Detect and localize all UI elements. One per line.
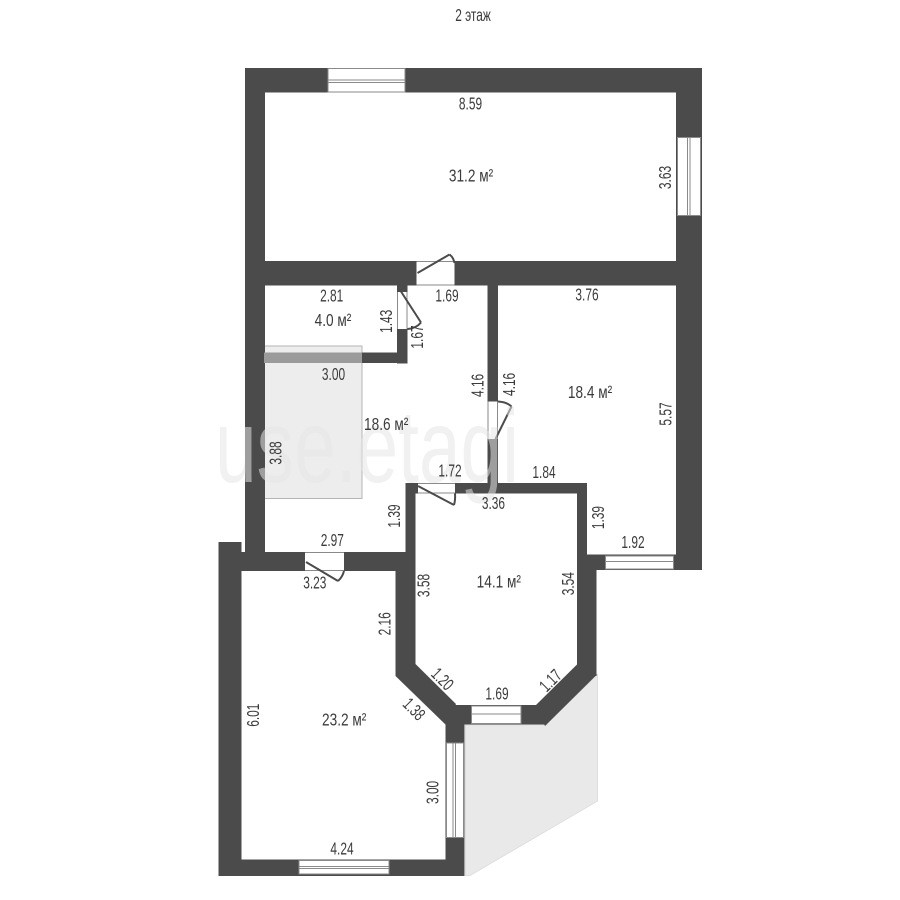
svg-text:3.23: 3.23 bbox=[303, 573, 326, 593]
svg-text:3.76: 3.76 bbox=[575, 285, 598, 305]
svg-text:2.16: 2.16 bbox=[375, 612, 395, 635]
svg-text:4.24: 4.24 bbox=[330, 839, 353, 859]
svg-text:31.2 м²: 31.2 м² bbox=[449, 167, 493, 186]
svg-text:14.1 м²: 14.1 м² bbox=[477, 573, 521, 592]
svg-text:3.54: 3.54 bbox=[559, 572, 579, 595]
svg-text:2.81: 2.81 bbox=[320, 286, 343, 306]
svg-text:use.etagi: use.etagi bbox=[215, 389, 519, 505]
svg-text:1.69: 1.69 bbox=[485, 684, 508, 704]
svg-text:1.43: 1.43 bbox=[377, 310, 397, 333]
svg-text:4.0 м²: 4.0 м² bbox=[315, 311, 352, 330]
svg-text:8.59: 8.59 bbox=[459, 94, 482, 114]
svg-text:18.4 м²: 18.4 м² bbox=[568, 384, 612, 403]
svg-text:1.67: 1.67 bbox=[408, 325, 428, 348]
svg-text:23.2 м²: 23.2 м² bbox=[322, 711, 366, 730]
svg-text:1.84: 1.84 bbox=[532, 463, 555, 483]
svg-text:4.16: 4.16 bbox=[468, 374, 488, 397]
svg-text:2.97: 2.97 bbox=[321, 531, 344, 551]
svg-text:4.16: 4.16 bbox=[500, 373, 520, 396]
svg-text:1.39: 1.39 bbox=[589, 506, 609, 529]
svg-text:3.63: 3.63 bbox=[656, 166, 676, 189]
svg-text:6.01: 6.01 bbox=[244, 704, 264, 727]
svg-text:3.58: 3.58 bbox=[414, 574, 434, 597]
svg-text:5.57: 5.57 bbox=[656, 402, 676, 425]
svg-text:2 этаж: 2 этаж bbox=[455, 6, 491, 26]
svg-text:1.92: 1.92 bbox=[621, 533, 644, 553]
svg-text:3.00: 3.00 bbox=[322, 365, 345, 385]
svg-text:1.39: 1.39 bbox=[385, 504, 405, 527]
svg-text:18.6 м²: 18.6 м² bbox=[364, 416, 408, 435]
svg-text:3.36: 3.36 bbox=[482, 494, 505, 514]
svg-text:1.72: 1.72 bbox=[438, 461, 461, 481]
svg-text:1.69: 1.69 bbox=[435, 286, 458, 306]
svg-text:3.00: 3.00 bbox=[423, 781, 443, 804]
svg-text:3.88: 3.88 bbox=[266, 441, 286, 464]
